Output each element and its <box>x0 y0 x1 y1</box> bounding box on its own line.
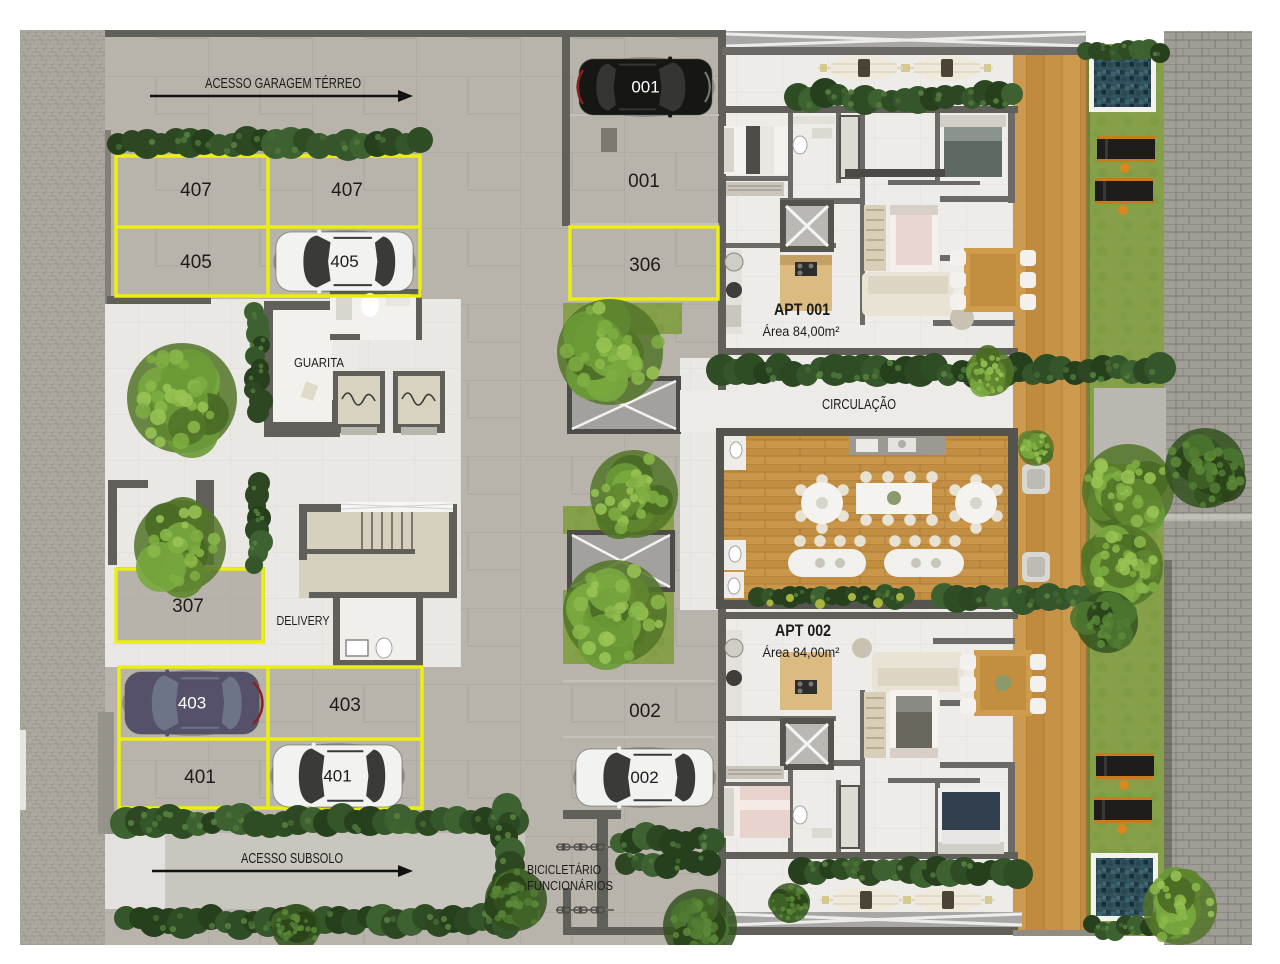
svg-text:401: 401 <box>184 767 216 788</box>
svg-text:403: 403 <box>178 694 206 713</box>
svg-text:Área 84,00m²: Área 84,00m² <box>763 645 840 660</box>
svg-text:002: 002 <box>630 768 658 787</box>
svg-text:Área 84,00m²: Área 84,00m² <box>763 324 840 339</box>
svg-text:APT 002: APT 002 <box>775 622 831 640</box>
svg-text:405: 405 <box>330 252 358 271</box>
svg-text:DELIVERY: DELIVERY <box>277 613 330 628</box>
svg-text:001: 001 <box>628 171 660 192</box>
svg-text:BICICLETÁRIO: BICICLETÁRIO <box>527 862 601 877</box>
svg-text:401: 401 <box>323 767 351 786</box>
svg-text:001: 001 <box>631 78 659 97</box>
svg-text:ACESSO GARAGEM TÉRREO: ACESSO GARAGEM TÉRREO <box>205 75 361 92</box>
svg-text:FUNCIONÁRIOS: FUNCIONÁRIOS <box>527 878 613 893</box>
svg-text:GUARITA: GUARITA <box>294 356 345 370</box>
svg-text:307: 307 <box>172 596 204 617</box>
svg-text:ACESSO SUBSOLO: ACESSO SUBSOLO <box>241 851 343 867</box>
svg-text:002: 002 <box>629 701 661 722</box>
svg-text:403: 403 <box>329 695 361 716</box>
svg-text:407: 407 <box>180 180 212 201</box>
svg-text:407: 407 <box>331 180 363 201</box>
svg-text:CIRCULAÇÃO: CIRCULAÇÃO <box>822 396 896 413</box>
svg-text:405: 405 <box>180 252 212 273</box>
svg-text:APT 001: APT 001 <box>774 301 830 319</box>
svg-text:306: 306 <box>629 255 661 276</box>
